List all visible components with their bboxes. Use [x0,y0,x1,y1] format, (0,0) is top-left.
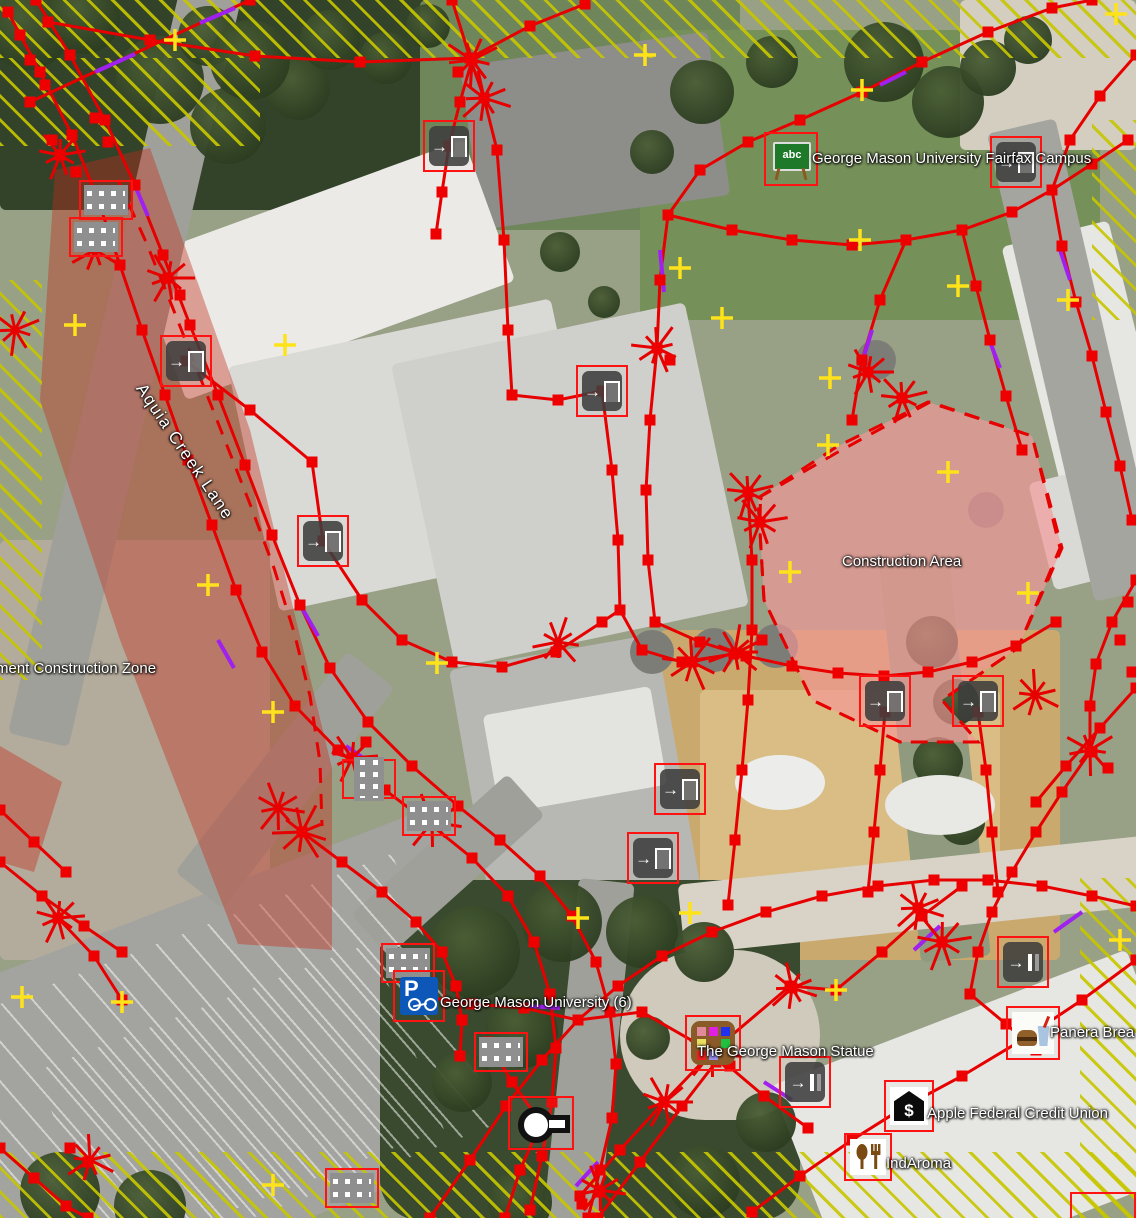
map-node[interactable] [577,1199,588,1210]
map-node[interactable] [875,765,886,776]
map-node[interactable] [297,827,308,838]
map-node[interactable] [743,137,754,148]
map-node[interactable] [257,647,268,658]
crossing-glyph [407,801,451,831]
map-node[interactable] [637,645,648,656]
map-node[interactable] [875,295,886,306]
door-glyph: → [660,769,700,809]
map-node[interactable] [641,485,652,496]
map-way[interactable] [655,622,1056,676]
map-node[interactable] [431,229,442,240]
map-node[interactable] [611,1059,622,1070]
map-node[interactable] [857,355,868,366]
map-node[interactable] [817,891,828,902]
map-node[interactable] [607,465,618,476]
map-node[interactable] [1007,867,1018,878]
map-node[interactable] [535,871,546,882]
map-node[interactable] [267,530,278,541]
map-node[interactable] [580,0,591,10]
pedestrian-crossing-icon[interactable] [325,1168,379,1208]
map-node[interactable] [923,667,934,678]
map-node[interactable] [727,225,738,236]
map-node[interactable] [61,1201,72,1212]
map-way[interactable] [868,712,885,892]
map-node[interactable] [1131,575,1136,586]
map-node[interactable] [37,891,48,902]
map-node[interactable] [53,913,64,924]
map-node[interactable] [1037,881,1048,892]
map-node[interactable] [551,647,562,658]
bicycle-parking-icon[interactable]: P [393,970,445,1022]
map-node[interactable] [755,517,766,528]
map-node[interactable] [117,947,128,958]
map-node[interactable] [467,853,478,864]
map-node[interactable] [665,355,676,366]
map-node[interactable] [407,761,418,772]
map-node[interactable] [747,625,758,636]
map-node[interactable] [643,555,654,566]
map-node[interactable] [695,637,706,648]
map-node[interactable] [377,887,388,898]
map-node[interactable] [333,745,344,756]
map-node[interactable] [83,1213,94,1218]
map-node[interactable] [551,1043,562,1054]
map-node[interactable] [503,325,514,336]
map-label-restaurant: IndAroma [886,1155,951,1172]
pedestrian-crossing-icon[interactable] [342,759,396,799]
map-node[interactable] [730,835,741,846]
map-node[interactable] [455,97,466,108]
map-node[interactable] [79,921,90,932]
pedestrian-crossing-icon[interactable] [69,217,123,257]
map-node[interactable] [597,617,608,628]
map-node[interactable] [40,80,51,91]
map-node[interactable] [447,657,458,668]
map-node[interactable] [1007,207,1018,218]
map-way[interactable] [1052,55,1136,190]
map-node[interactable] [1087,0,1098,6]
crossing-stripe [410,820,448,825]
map-node[interactable] [1123,135,1134,146]
map-node[interactable] [1101,407,1112,418]
pedestrian-crossing-icon[interactable] [474,1032,528,1072]
map-node[interactable] [897,393,908,404]
map-node[interactable] [737,765,748,776]
crossing-stripe [87,191,125,196]
map-node[interactable] [83,1157,94,1168]
map-node[interactable] [3,7,14,18]
map-node[interactable] [1001,391,1012,402]
map-node[interactable] [245,0,256,6]
map-node[interactable] [637,1007,648,1018]
map-node[interactable] [0,1143,6,1154]
map-node[interactable] [615,1145,626,1156]
map-node[interactable] [465,1155,476,1166]
map-node[interactable] [1087,891,1098,902]
map-node[interactable] [35,67,46,78]
map-node[interactable] [595,1187,606,1198]
map-node[interactable] [983,27,994,38]
map-node[interactable] [207,520,218,531]
map-node[interactable] [0,857,6,868]
map-node[interactable] [615,605,626,616]
map-node[interactable] [525,21,536,32]
map-node[interactable] [357,595,368,606]
map-node[interactable] [1011,641,1022,652]
map-node[interactable] [25,97,36,108]
entrance-door-icon[interactable]: → [423,120,475,172]
map-node[interactable] [437,187,448,198]
map-node[interactable] [447,0,458,6]
map-node[interactable] [1031,827,1042,838]
way-direction-segment[interactable] [1054,912,1082,932]
map-node[interactable] [652,343,663,354]
crossing-glyph [330,1173,374,1203]
map-node[interactable] [1131,50,1136,61]
crossing-stripe [333,1179,371,1184]
map-node[interactable] [645,415,656,426]
map-node[interactable] [803,1123,814,1134]
map-node[interactable] [1085,701,1096,712]
map-node[interactable] [613,535,624,546]
map-node[interactable] [677,657,688,668]
door-frame-glyph [604,381,620,402]
map-node[interactable] [743,487,754,498]
map-node[interactable] [250,51,261,62]
entrance-elevator-icon[interactable]: → [779,1056,831,1108]
entrance-door-icon[interactable]: → [627,832,679,884]
map-node[interactable] [607,1113,618,1124]
map-node[interactable] [795,1171,806,1182]
map-node[interactable] [1131,901,1136,912]
map-node[interactable] [499,235,510,246]
map-node[interactable] [507,390,518,401]
map-node[interactable] [1095,91,1106,102]
door-glyph: → [303,521,343,561]
way-direction-segment[interactable] [200,8,235,23]
map-node[interactable] [757,635,768,646]
map-node[interactable] [100,115,111,126]
crossing-stripe [389,954,427,959]
map-node[interactable] [115,260,126,271]
map-node[interactable] [231,585,242,596]
map-node[interactable] [175,290,186,301]
map-node[interactable] [655,275,666,286]
map-node[interactable] [741,651,752,662]
map-node[interactable] [290,701,301,712]
map-node[interactable] [1057,241,1068,252]
map-node[interactable] [507,1077,518,1088]
map-node[interactable] [163,273,174,284]
map-node[interactable] [185,320,196,331]
map-node[interactable] [971,281,982,292]
map-node[interactable] [47,135,58,146]
way-stub[interactable] [88,1134,90,1160]
map-node[interactable] [497,662,508,673]
map-node[interactable] [1071,297,1082,308]
door-glyph: → [582,371,622,411]
door-glyph: → [166,341,206,381]
map-node[interactable] [553,395,564,406]
map-node[interactable] [145,35,156,46]
selection-box-partial[interactable] [1070,1192,1136,1218]
map-node[interactable] [973,947,984,958]
map-node[interactable] [325,663,336,674]
artwork-dot [697,1027,706,1036]
map-node[interactable] [937,937,948,948]
map-node[interactable] [863,367,874,378]
pedestrian-crossing-icon[interactable] [79,180,133,220]
map-node[interactable] [957,225,968,236]
map-node[interactable] [747,1207,758,1218]
map-node[interactable] [43,17,54,28]
map-node[interactable] [787,661,798,672]
map-node[interactable] [967,657,978,668]
map-node[interactable] [515,1165,526,1176]
crossing-stripe [87,204,125,209]
artwork-dot [709,1027,718,1036]
cutlery-glyph [850,1139,886,1175]
map-node[interactable] [537,1055,548,1066]
door-frame-glyph [188,351,204,372]
map-node[interactable] [759,1091,770,1102]
map-node[interactable] [1103,763,1114,774]
way-direction-segment[interactable] [136,188,148,216]
map-node[interactable] [1061,761,1072,772]
way-direction-segment[interactable] [302,608,318,636]
map-node[interactable] [613,981,624,992]
map-node[interactable] [525,1205,536,1216]
map-node[interactable] [240,460,251,471]
map-node[interactable] [307,457,318,468]
map-node[interactable] [695,165,706,176]
map-node[interactable] [573,1015,584,1026]
map-node[interactable] [65,50,76,61]
map-node[interactable] [363,717,374,728]
map-node[interactable] [981,765,992,776]
door-frame-glyph [655,848,671,869]
map-node[interactable] [929,875,940,886]
map-node[interactable] [591,957,602,968]
map-node[interactable] [29,837,40,848]
crossing-stripe [410,807,448,812]
arrow-glyph: → [305,533,322,550]
map-node[interactable] [500,1213,511,1218]
pedestrian-crossing-icon[interactable] [402,796,456,836]
way-direction-segment[interactable] [95,54,135,72]
map-node[interactable] [1087,351,1098,362]
map-node[interactable] [503,891,514,902]
bank-house-glyph: $ [894,1091,924,1121]
restaurant-icon[interactable] [844,1133,892,1181]
map-node[interactable] [650,617,661,628]
map-node[interactable] [90,113,101,124]
map-node[interactable] [747,555,758,566]
map-node[interactable] [863,887,874,898]
arrow-glyph: → [867,693,884,710]
map-node[interactable] [451,981,462,992]
map-node[interactable] [1131,683,1136,694]
map-node[interactable] [873,881,884,892]
map-node[interactable] [0,805,6,816]
map-node[interactable] [31,0,42,6]
way-direction-segment[interactable] [218,640,234,668]
way-stub[interactable] [1033,669,1035,695]
map-node[interactable] [659,1097,670,1108]
map-label-parking: George Mason University (6) [440,994,632,1011]
map-node[interactable] [295,600,306,611]
map-node[interactable] [707,927,718,938]
map-node[interactable] [361,737,372,748]
entrance-door-icon[interactable]: → [576,365,628,417]
key-icon[interactable] [508,1096,574,1150]
map-node[interactable] [479,93,490,104]
map-canvas[interactable]: →→→→→→→→→→→Pabc$ George Mason University… [0,0,1136,1218]
map-node[interactable] [15,30,26,41]
burger-drink-glyph [1012,1012,1054,1054]
map-node[interactable] [877,947,888,958]
map-node[interactable] [687,657,698,668]
map-node[interactable] [1127,667,1136,678]
map-node[interactable] [657,951,668,962]
burger-bottom-bun [1017,1041,1037,1046]
map-node[interactable] [495,835,506,846]
map-node[interactable] [1127,515,1136,526]
map-node[interactable] [55,150,66,161]
map-node[interactable] [453,67,464,78]
map-node[interactable] [595,1165,606,1176]
map-node[interactable] [71,167,82,178]
map-node[interactable] [89,951,100,962]
map-node[interactable] [635,1157,646,1168]
map-node[interactable] [355,57,366,68]
map-node[interactable] [1047,3,1058,14]
crossing-stripe [77,228,115,233]
drink-cup [1037,1026,1050,1046]
map-node[interactable] [677,1101,688,1112]
map-node[interactable] [987,907,998,918]
arrow-glyph: → [790,1074,807,1091]
map-node[interactable] [61,867,72,878]
map-node[interactable] [1131,955,1136,966]
door-glyph: → [865,681,905,721]
map-node[interactable] [1115,461,1126,472]
map-node[interactable] [213,390,224,401]
map-node[interactable] [437,947,448,958]
map-node[interactable] [663,210,674,221]
map-way[interactable] [323,541,620,667]
map-node[interactable] [467,55,478,66]
map-node[interactable] [1051,617,1062,628]
map-node[interactable] [729,649,740,660]
map-node[interactable] [457,1015,468,1026]
map-node[interactable] [983,875,994,886]
door-glyph: → [785,1062,825,1102]
map-node[interactable] [965,989,976,1000]
map-node[interactable] [957,1071,968,1082]
map-node[interactable] [583,1213,594,1218]
map-node[interactable] [869,827,880,838]
map-node[interactable] [397,635,408,646]
entrance-door-icon[interactable]: → [297,515,349,567]
map-node[interactable] [1091,659,1102,670]
map-node[interactable] [795,115,806,126]
map-node[interactable] [529,937,540,948]
map-node[interactable] [137,325,148,336]
map-node[interactable] [411,917,422,928]
map-node[interactable] [245,405,256,416]
map-node[interactable] [957,881,968,892]
map-node[interactable] [901,235,912,246]
map-node[interactable] [993,887,1004,898]
map-node[interactable] [492,145,503,156]
map-node[interactable] [1087,747,1098,758]
school-icon[interactable]: abc [764,132,818,186]
map-node[interactable] [787,235,798,246]
entrance-door-icon[interactable]: → [952,675,1004,727]
map-node[interactable] [917,57,928,68]
door-frame-glyph [451,136,467,157]
map-node[interactable] [1057,787,1068,798]
map-node[interactable] [29,1173,40,1184]
school-board-glyph: abc [770,138,812,180]
map-node[interactable] [1107,617,1118,628]
way-direction-segment[interactable] [864,330,872,356]
entrance-elevator-icon[interactable]: → [997,936,1049,988]
map-node[interactable] [833,668,844,679]
map-node[interactable] [761,907,772,918]
entrance-door-icon[interactable]: → [654,763,706,815]
crossing-stripe [482,1043,520,1048]
map-node[interactable] [1047,185,1058,196]
entrance-door-icon[interactable]: → [859,675,911,727]
map-node[interactable] [1115,635,1126,646]
map-node[interactable] [593,1213,604,1218]
map-node[interactable] [567,911,578,922]
map-node[interactable] [25,55,36,66]
map-node[interactable] [1017,445,1028,456]
map-label-bank: Apple Federal Credit Union [927,1105,1108,1122]
map-node[interactable] [103,137,114,148]
map-way[interactable] [978,712,998,892]
map-node[interactable] [1031,797,1042,808]
map-node[interactable] [1065,135,1076,146]
map-node[interactable] [787,983,798,994]
way-direction-segment[interactable] [880,72,906,85]
way-direction-segment[interactable] [990,342,1000,368]
map-node[interactable] [1095,723,1106,734]
map-node[interactable] [337,857,348,868]
map-node[interactable] [65,1143,76,1154]
map-node[interactable] [743,695,754,706]
map-node[interactable] [985,335,996,346]
map-node[interactable] [537,1151,548,1162]
arrow-glyph: → [168,353,185,370]
entrance-door-icon[interactable]: → [160,335,212,387]
map-way[interactable] [602,391,762,662]
map-node[interactable] [455,1051,466,1062]
map-node[interactable] [847,415,858,426]
map-node[interactable] [425,1213,436,1218]
map-node[interactable] [1077,995,1088,1006]
map-node[interactable] [913,903,924,914]
map-node[interactable] [987,827,998,838]
map-node[interactable] [723,900,734,911]
map-node[interactable] [158,250,169,261]
door-frame-glyph [980,691,996,712]
map-node[interactable] [1123,597,1134,608]
map-node[interactable] [67,130,78,141]
